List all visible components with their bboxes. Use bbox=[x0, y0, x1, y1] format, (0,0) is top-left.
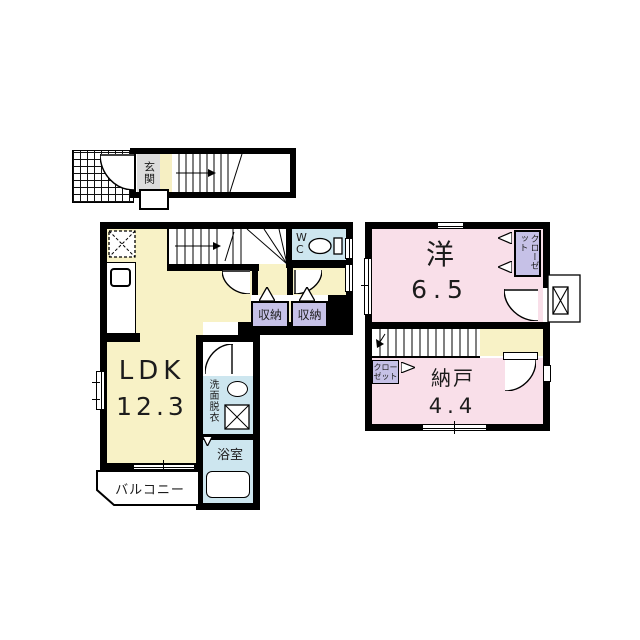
folding-door-icon bbox=[259, 287, 275, 301]
floor1-staircase bbox=[172, 154, 248, 192]
ldk-area: 12.3 bbox=[104, 392, 200, 421]
shaft-icon bbox=[547, 274, 581, 323]
folding-door-icon bbox=[498, 261, 512, 273]
floor2-staircase bbox=[169, 229, 287, 264]
folding-door-icon bbox=[498, 232, 512, 244]
floor3-staircase bbox=[372, 329, 480, 356]
window-symbol bbox=[345, 238, 353, 259]
storage-room-door-leaf bbox=[503, 352, 538, 360]
storage-closet-left: 収納 bbox=[251, 301, 289, 328]
bathtub-icon bbox=[206, 471, 250, 498]
washing-machine-icon bbox=[224, 404, 250, 430]
window-symbol bbox=[543, 365, 551, 382]
f2-wall-left bbox=[100, 222, 107, 470]
floorplan-canvas: 玄関 WC bbox=[0, 0, 640, 640]
western-room-door-arc bbox=[504, 289, 538, 321]
window-tick bbox=[92, 399, 100, 400]
storage-room-door-arc bbox=[505, 360, 536, 391]
storage-room-name: 納戸 bbox=[402, 362, 504, 391]
sink-icon bbox=[227, 381, 248, 397]
floor1-hall-strip bbox=[160, 154, 172, 192]
entrance-label: 玄関 bbox=[141, 161, 157, 185]
ldk-label-block: LDK 12.3 bbox=[104, 356, 200, 421]
f3-wall-middle bbox=[365, 322, 550, 329]
western-room-label-block: 洋 6.5 bbox=[388, 233, 492, 304]
entrance-room: 玄関 bbox=[137, 154, 160, 192]
ldk-name: LDK bbox=[104, 356, 200, 386]
window-symbol bbox=[364, 258, 372, 315]
window-tick bbox=[361, 285, 369, 286]
shoe-cabinet bbox=[139, 189, 169, 210]
bath-label: 浴室 bbox=[210, 444, 250, 463]
storage-room-label-block: 納戸 4.4 bbox=[402, 362, 504, 418]
storage-room-closet: クロー ゼット bbox=[372, 360, 399, 384]
storage-closet-right: 収納 bbox=[291, 301, 328, 328]
folding-door-icon bbox=[299, 287, 315, 301]
f2-storage-right-wall bbox=[328, 295, 346, 335]
f2-wall-top bbox=[100, 222, 353, 229]
kitchen-stub-wall bbox=[100, 333, 140, 342]
western-room-name: 洋 bbox=[388, 233, 492, 273]
window-tick bbox=[454, 421, 455, 434]
storage-room-closet-label: クロー ゼット bbox=[374, 363, 398, 381]
western-room-area: 6.5 bbox=[388, 275, 492, 304]
entrance-door-arc bbox=[100, 154, 134, 190]
balcony-label: バルコニー bbox=[106, 479, 194, 498]
storage-left-label: 収納 bbox=[258, 306, 282, 323]
washroom-label: 洗面脱衣 bbox=[205, 379, 220, 433]
window-symbol bbox=[437, 222, 464, 229]
window-symbol bbox=[345, 264, 353, 292]
storage-room-area: 4.4 bbox=[402, 394, 504, 418]
storage-right-label: 収納 bbox=[297, 306, 321, 323]
window-tick bbox=[92, 382, 100, 383]
closet: クローゼット bbox=[514, 230, 541, 277]
toilet-icon bbox=[306, 233, 346, 259]
refrigerator-icon bbox=[108, 230, 136, 258]
window-symbol bbox=[96, 371, 105, 410]
ldk-hall-door-arc bbox=[222, 270, 250, 294]
washroom-door-arc bbox=[205, 344, 233, 374]
closet-label: クローゼット bbox=[517, 234, 539, 274]
kitchen-sink-icon bbox=[110, 268, 131, 287]
f2-wc-bottom-wall bbox=[286, 260, 346, 268]
